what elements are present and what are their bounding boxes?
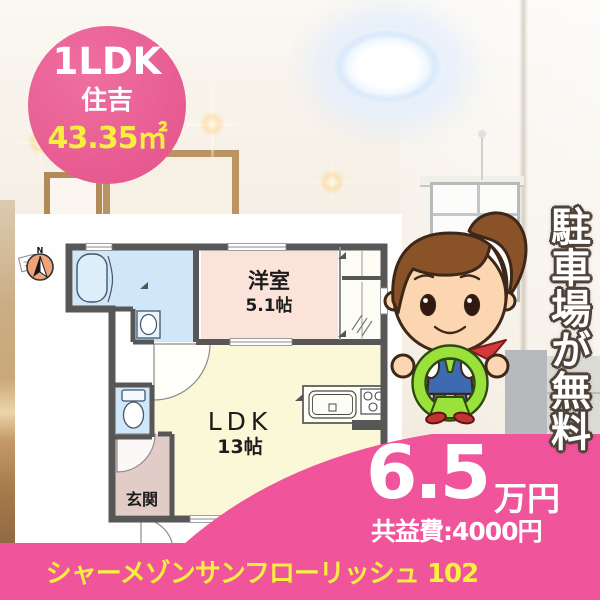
compass-north-label: N	[37, 246, 44, 255]
badge-area: 43.35㎡	[28, 120, 186, 158]
badge-location: 住吉	[28, 83, 186, 120]
parking-free-ribbon: 駐車場が無料	[544, 206, 590, 452]
mascot-character	[378, 206, 530, 436]
property-badge: 1LDK 住吉 43.35㎡	[28, 26, 186, 184]
floor-plan: N 洋室 5.1帖 LDK 13帖 玄関	[15, 214, 402, 543]
kitchen-counter	[303, 386, 386, 423]
rent-price: 6.5	[366, 436, 488, 510]
floor-plan-card: N 洋室 5.1帖 LDK 13帖 玄関	[15, 214, 402, 543]
badge-layout: 1LDK	[28, 41, 186, 83]
western-room-label: 洋室	[248, 269, 290, 293]
compass-icon: N	[19, 246, 53, 280]
right-hand	[486, 355, 508, 377]
advertisement-canvas: N 洋室 5.1帖 LDK 13帖 玄関	[0, 0, 600, 600]
photo-left-wall-strip	[0, 200, 15, 543]
western-room-size: 5.1帖	[245, 295, 292, 316]
ldk-size: 13帖	[217, 435, 262, 458]
left-hand	[392, 355, 414, 377]
ceiling-light	[331, 28, 444, 105]
property-name: シャーメゾンサンフローリッシュ 102	[12, 553, 512, 590]
toilet-icon	[122, 390, 145, 428]
entrance-label: 玄関	[126, 490, 158, 509]
sparkle-flare-icon	[310, 160, 354, 204]
photo-hanging-cord	[481, 136, 483, 180]
kitchen-sink-icon	[309, 391, 356, 418]
ldk-label: LDK	[208, 407, 273, 436]
washbasin-icon	[137, 311, 160, 338]
